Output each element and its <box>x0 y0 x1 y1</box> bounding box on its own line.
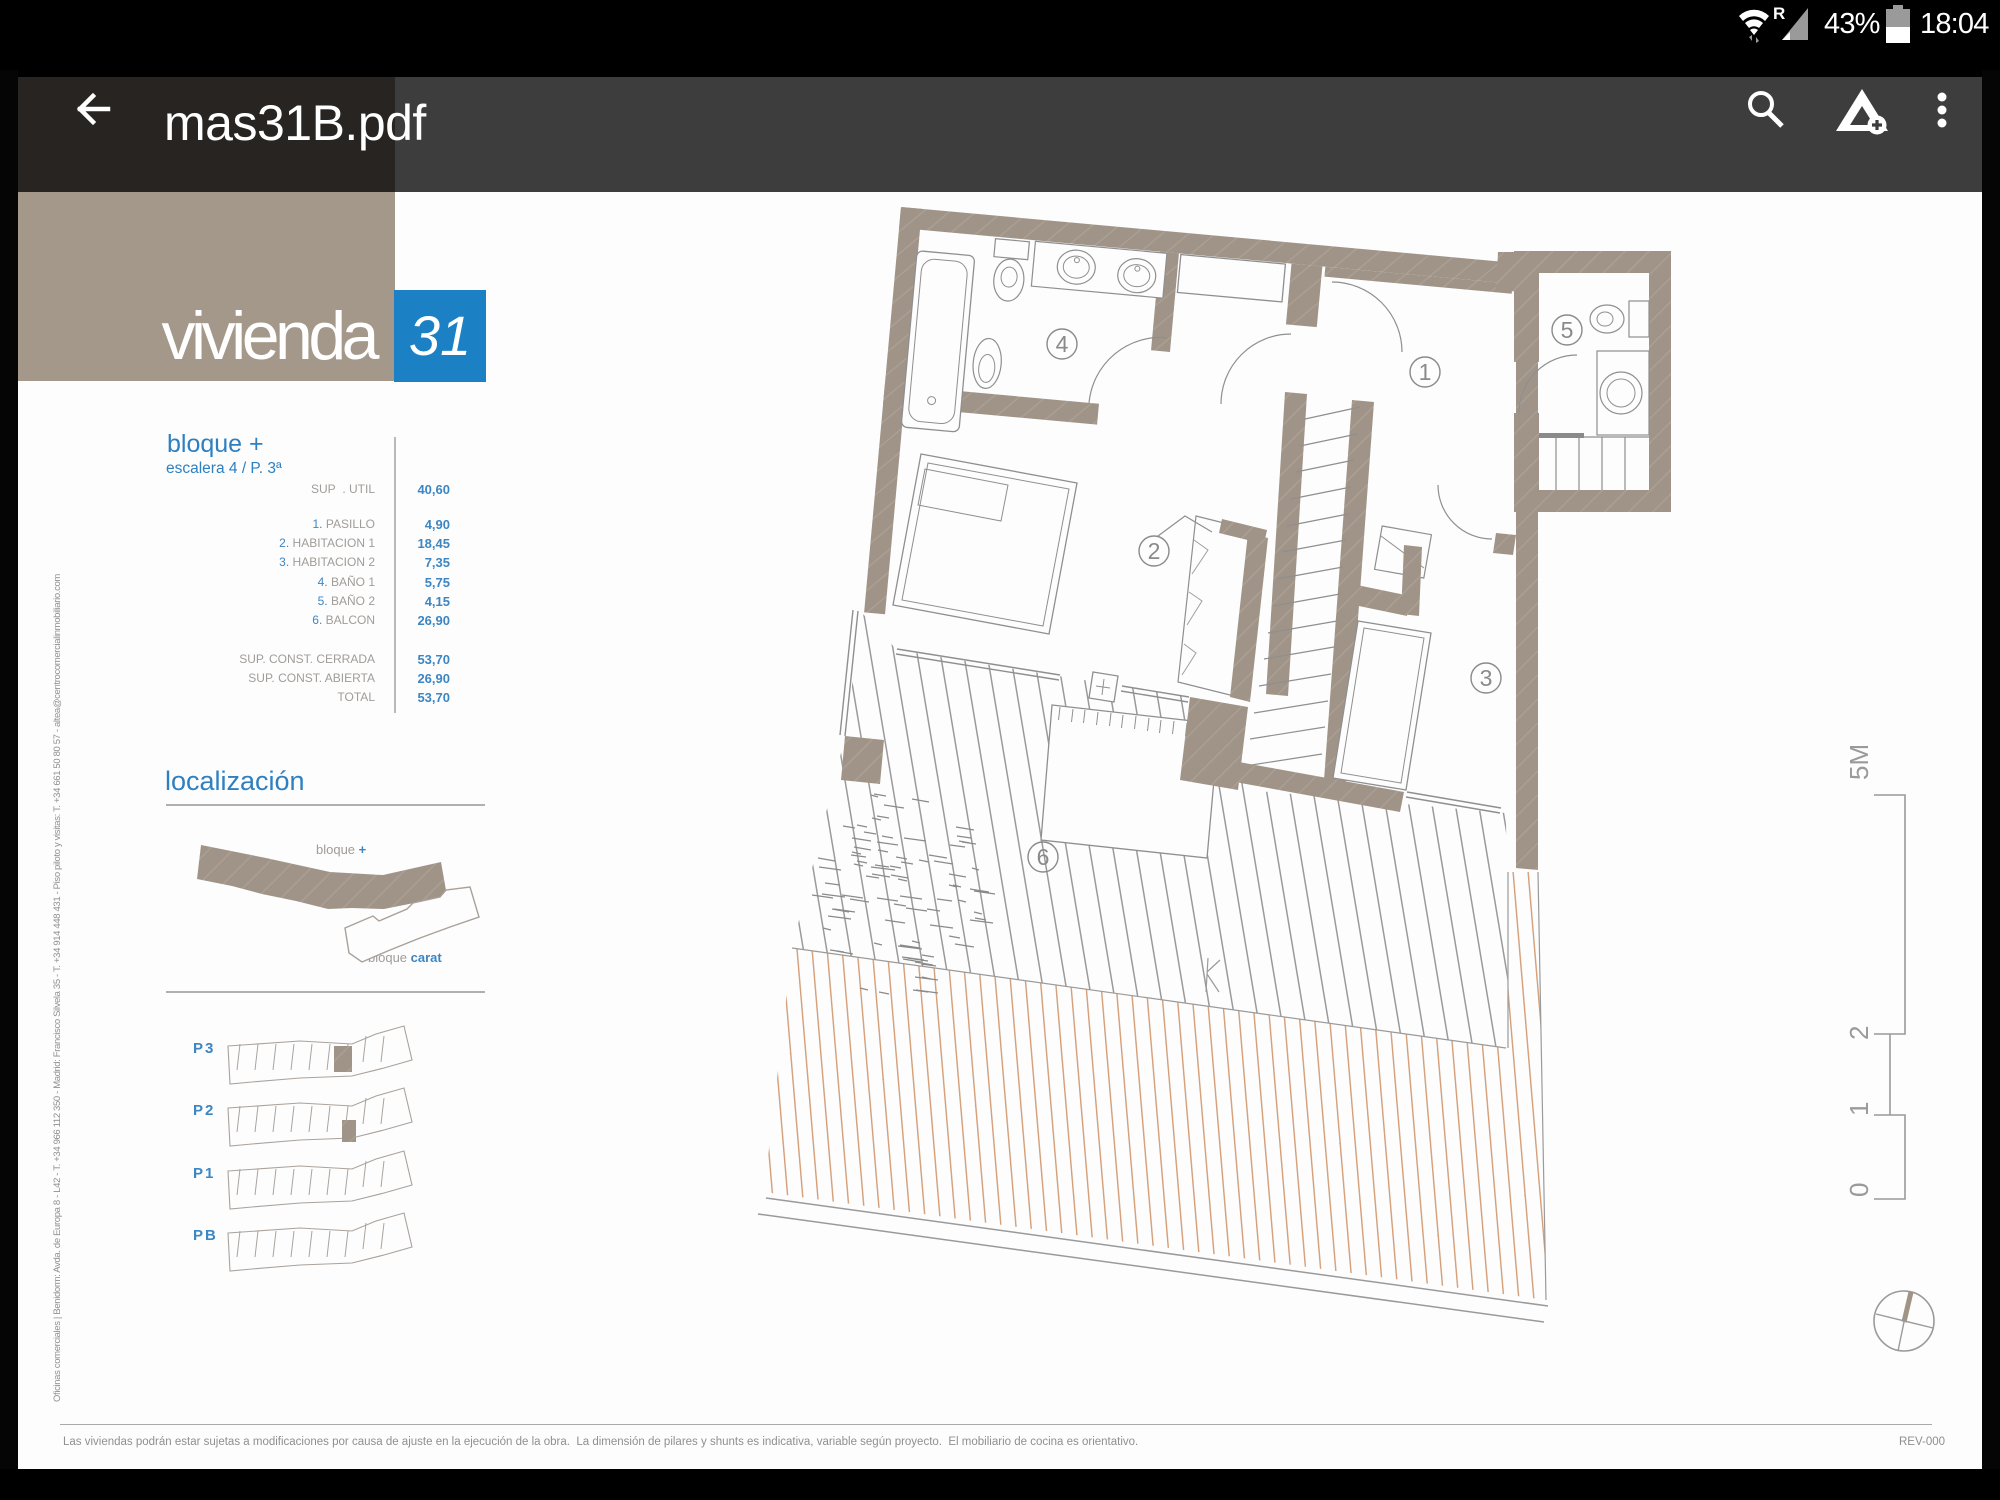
svg-text:6: 6 <box>1037 844 1050 870</box>
svg-text:3: 3 <box>1480 665 1493 691</box>
svg-text:1: 1 <box>1419 359 1432 385</box>
svg-text:5: 5 <box>1561 317 1574 343</box>
svg-text:2: 2 <box>1148 538 1161 564</box>
svg-text:0: 0 <box>1844 1183 1874 1197</box>
svg-text:5M: 5M <box>1844 744 1874 780</box>
svg-text:2: 2 <box>1844 1026 1874 1040</box>
svg-text:4: 4 <box>1056 331 1069 357</box>
svg-text:1: 1 <box>1844 1102 1874 1116</box>
